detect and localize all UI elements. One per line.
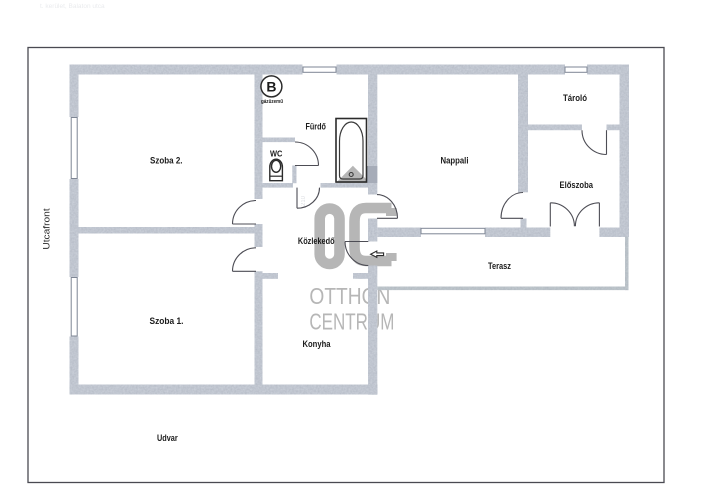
svg-text:Közlekedő: Közlekedő	[298, 236, 335, 246]
svg-text:Nappali: Nappali	[441, 156, 469, 166]
svg-text:Szoba 1.: Szoba 1.	[150, 316, 184, 326]
svg-text:B: B	[266, 79, 276, 95]
svg-text:Fürdő: Fürdő	[306, 122, 327, 132]
svg-text:Terasz: Terasz	[488, 261, 511, 271]
svg-text:Előszoba: Előszoba	[560, 180, 594, 190]
svg-text:Udvar: Udvar	[157, 433, 178, 443]
svg-text:Utcafront: Utcafront	[41, 208, 52, 250]
svg-text:gázüzemű: gázüzemű	[261, 99, 283, 105]
svg-text:Konyha: Konyha	[303, 339, 332, 349]
svg-text:210: 210	[301, 195, 307, 206]
svg-text:Tároló: Tároló	[563, 93, 587, 103]
svg-text:CENTRUM: CENTRUM	[309, 309, 394, 335]
svg-text:t. kerület, Balaton utca: t. kerület, Balaton utca	[40, 3, 105, 10]
svg-text:Szoba 2.: Szoba 2.	[150, 156, 183, 166]
svg-text:WC: WC	[270, 149, 282, 159]
